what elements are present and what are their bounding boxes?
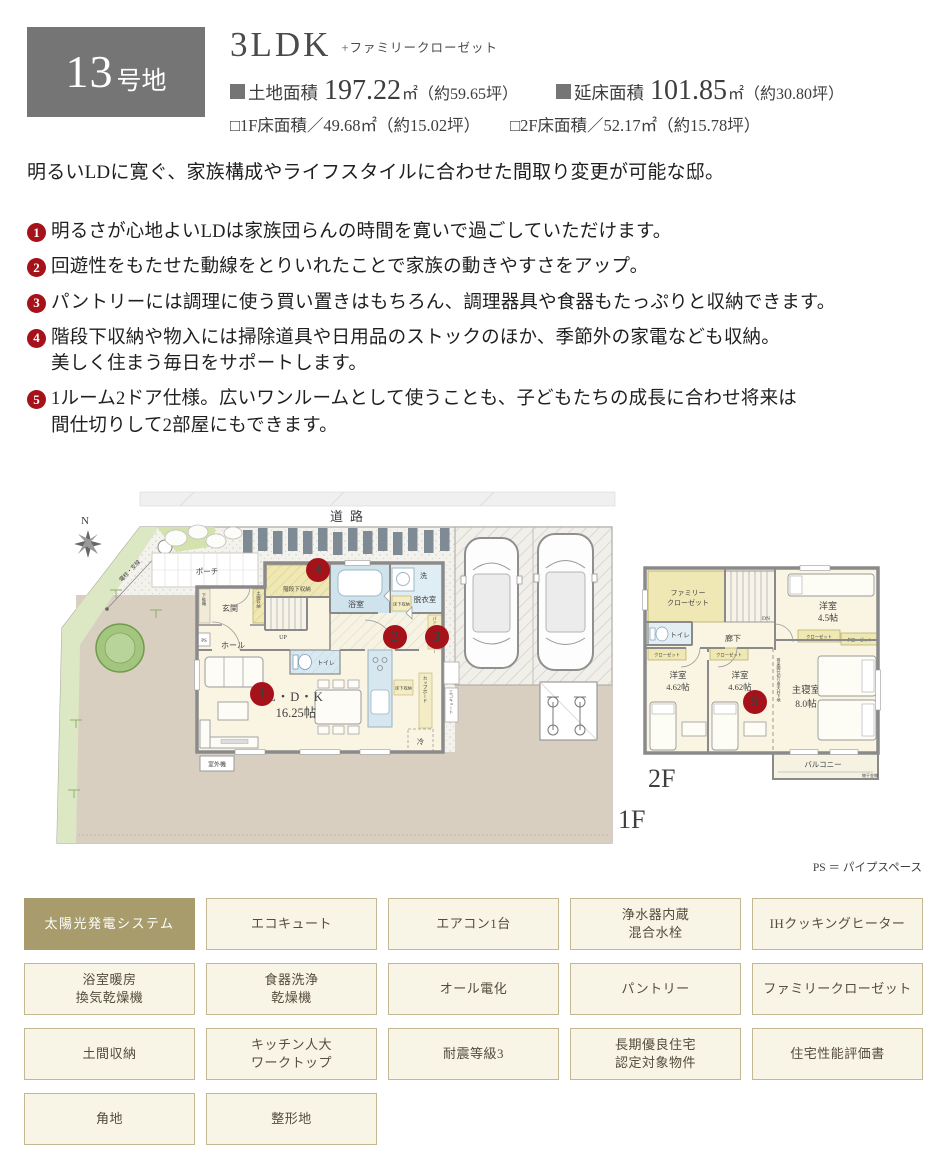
description-point: 2回遊性をもたせた動線をとりいれたことで家族の動きやすさをアップ。 [27,254,927,280]
lot-badge: 13 号地 [27,27,205,117]
room462-size: 4.62帖 [728,682,752,692]
ps-note: PS ＝ パイプスペース [813,861,922,874]
balcony-note: 物干金物 [862,772,878,778]
feature-tag: 浄水器内蔵 混合水栓 [570,898,741,950]
lot-suffix: 号地 [116,47,166,97]
land-area: 土地面積 197.22 ㎡ （約59.65坪） [230,75,518,107]
doma-storage-label: 土間収納 [256,590,262,610]
plan-suffix: +ファミリークローゼット [341,37,498,56]
floor-area-value: 101.85 [650,75,727,107]
badge-1: 1 [258,686,266,702]
hallway-label: 廊下 [725,633,741,643]
family-closet-label: ファミリー [671,589,706,597]
stair-storage-label: 階段下収納 [283,585,311,593]
ps-label: PS [201,639,207,644]
feature-tag: 整形地 [206,1093,377,1145]
feature-tag: パントリー [570,963,741,1015]
badge-2: 2 [391,629,399,645]
filled-square-icon [556,84,571,99]
feature-tag: 食器洗浄 乾燥機 [206,963,377,1015]
floor2-label: 2F [648,764,675,793]
floorplan-figure: 道路 N [0,490,950,890]
floor2-area: □2F床面積／52.17㎡（約15.78坪） [510,112,760,136]
toilet-1f-label: トイレ [317,661,335,667]
floorplan-svg: 道路 N [0,490,950,890]
outdoor-unit-label: 室外機 [208,761,226,769]
ldk-size-label: 16.25帖 [276,705,317,720]
land-area-tsubo: （約59.65坪） [418,80,518,104]
room45-size: 4.5帖 [818,612,838,623]
point-number-badge: 5 [27,390,46,409]
description-point: 3パントリーには調理に使う買い置きはもちろん、調理器具や食器もたっぷりと収納でき… [27,290,927,316]
land-area-unit: ㎡ [402,80,418,104]
point-text: 1ルーム2ドア仕様。広いワンルームとして使うことも、子どもたちの成長に合わせ将来… [51,386,797,439]
filled-square-icon [230,84,245,99]
closet-label: クローゼット [654,652,680,659]
room462-label: 洋室 [731,670,749,680]
land-area-label: 土地面積 [248,80,318,105]
floor-storage-label: 床下収納 [395,685,412,692]
point-text: 明るさが心地よいLDは家族団らんの時間を寛いで過ごしていただけます。 [51,219,672,245]
parking-area [455,527,612,685]
feature-tag: 耐震等級3 [388,1028,559,1080]
feature-tag: 土間収納 [24,1028,195,1080]
description-point: 51ルーム2ドア仕様。広いワンルームとして使うことも、子どもたちの成長に合わせ将… [27,386,927,439]
lot-number: 13 [65,49,113,95]
point-number-badge: 1 [27,223,46,242]
house-1f: 浴室 洗 脱衣室 床下収納 階段下収納 UP 下駄箱 土間収納 玄関 [195,561,460,772]
feature-tag: オール電化 [388,963,559,1015]
feature-tag: キッチン人大 ワークトップ [206,1028,377,1080]
description-points: 1明るさが心地よいLDは家族団らんの時間を寛いで過ごしていただけます。2回遊性を… [27,219,927,448]
master-label: 主寝室 [792,684,821,696]
point-text: 回遊性をもたせた動線をとりいれたことで家族の動きやすさをアップ。 [51,254,648,280]
badge-4: 4 [314,562,322,578]
floor-area-tsubo: （約30.80坪） [744,80,844,104]
bath-label: 浴室 [348,599,364,609]
point-number-badge: 4 [27,329,46,348]
stairs-dn-label: DN [762,616,770,622]
floor-area-unit: ㎡ [728,80,744,104]
porch-label: ポーチ [196,567,219,576]
feature-tags: 太陽光発電システムエコキュートエアコン1台浄水器内蔵 混合水栓IHクッキングヒー… [24,898,923,1145]
partition-note: 将来間仕切り用天井下地 [777,657,782,702]
floor-area-label: 延床面積 [574,80,644,105]
master-size: 8.0帖 [795,698,817,710]
floor-area: 延床面積 101.85 ㎡ （約30.80坪） [556,75,844,107]
feature-tag: エコキュート [206,898,377,950]
area-row: 土地面積 197.22 ㎡ （約59.65坪） 延床面積 101.85 ㎡ （約… [230,75,844,107]
feature-tag: 浴室暖房 換気乾燥機 [24,963,195,1015]
sub-area-row: □1F床面積／49.68㎡（約15.02坪） □2F床面積／52.17㎡（約15… [230,112,844,136]
feature-tag: 太陽光発電システム [24,898,195,950]
floor-storage-label: 床下収納 [393,601,410,608]
feature-tag: エアコン1台 [388,898,559,950]
closet-label: クローゼット [716,652,742,659]
compass-n-label: N [81,515,89,527]
car-icon [461,538,522,668]
washer-label: 洗 [420,571,427,580]
car-icon [534,534,597,670]
floorplan-2f: ファミリー クローゼット DN 洋室 4.5帖 クローゼット クローゼット [643,566,881,780]
dressing-label: 脱衣室 [414,594,437,604]
bicycle-area [540,682,597,740]
point-number-badge: 2 [27,258,46,277]
balcony-label: バルコニー [804,760,841,769]
description-point: 1明るさが心地よいLDは家族団らんの時間を寛いで過ごしていただけます。 [27,219,927,245]
porch: ポーチ [152,553,258,587]
fridge-label: 冷 [417,737,424,746]
compass-icon: N [74,515,102,558]
header: 13 号地 3LDK +ファミリークローゼット 土地面積 197.22 ㎡ （約… [27,27,844,136]
floor1-label: 1F [618,805,645,834]
point-text: 階段下収納や物入には掃除道具や日用品のストックのほか、季節外の家電なども収納。 … [51,325,780,378]
room45-label: 洋室 [819,600,837,611]
cupboard-label: カップボード [422,676,428,704]
road-label: 道路 [330,509,370,524]
point-number-badge: 3 [27,294,46,313]
ecocute-label: エコキュート [449,690,454,714]
badge-5: 5 [751,694,759,710]
shoe-box-label: 下駄箱 [201,593,207,607]
feature-tag: 角地 [24,1093,195,1145]
flyer-page: 13 号地 3LDK +ファミリークローゼット 土地面積 197.22 ㎡ （約… [0,0,950,1165]
feature-tag: 住宅性能評価書 [752,1028,923,1080]
ldk-label: L・D・K [268,690,324,704]
feature-tag: 長期優良住宅 認定対象物件 [570,1028,741,1080]
badge-3: 3 [433,629,441,645]
description-point: 4階段下収納や物入には掃除道具や日用品のストックのほか、季節外の家電なども収納。… [27,325,927,378]
point-text: パントリーには調理に使う買い置きはもちろん、調理器具や食器もたっぷりと収納できま… [51,290,835,316]
family-closet-label: クローゼット [667,598,709,607]
header-right: 3LDK +ファミリークローゼット 土地面積 197.22 ㎡ （約59.65坪… [230,27,844,136]
plan-type: 3LDK [230,27,331,62]
land-area-value: 197.22 [324,75,401,107]
room462-size: 4.62帖 [666,682,690,692]
toilet-2f-label: トイレ [670,632,690,639]
hall-label: ホール [221,641,245,650]
feature-tag: IHクッキングヒーター [752,898,923,950]
intro-text: 明るいLDに寛ぐ、家族構成やライフスタイルに合わせた間取り変更が可能な邸。 [27,157,724,184]
stairs-up-label: UP [279,635,287,641]
feature-tag: ファミリークローゼット [752,963,923,1015]
title-row: 3LDK +ファミリークローゼット [230,27,844,62]
floor1-area: □1F床面積／49.68㎡（約15.02坪） [230,112,480,136]
room462-label: 洋室 [669,670,687,680]
